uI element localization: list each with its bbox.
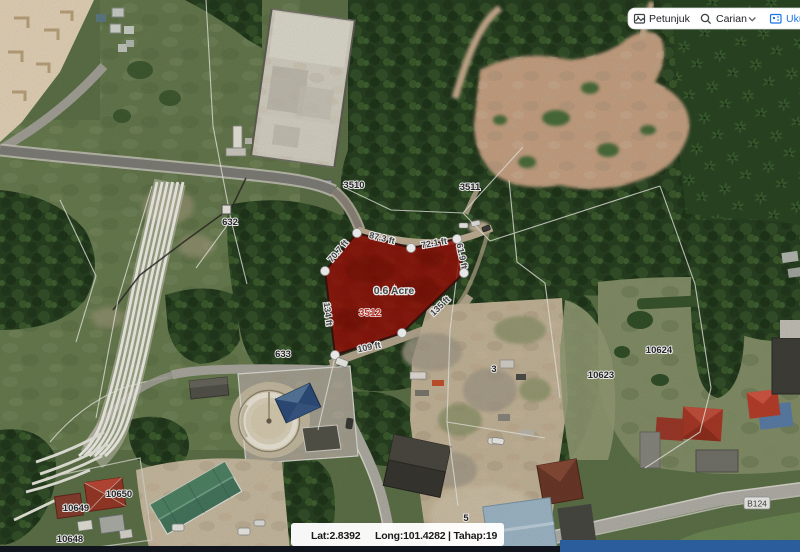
- svg-text:Lat:2.8392: Lat:2.8392: [311, 530, 361, 542]
- svg-text:Long:101.4282: Long:101.4282: [375, 530, 446, 542]
- svg-text:| Tahap:19: | Tahap:19: [448, 530, 498, 542]
- svg-text:Carian: Carian: [716, 13, 747, 25]
- svg-text:Petunjuk: Petunjuk: [649, 13, 691, 25]
- svg-text:Uku: Uku: [786, 13, 800, 25]
